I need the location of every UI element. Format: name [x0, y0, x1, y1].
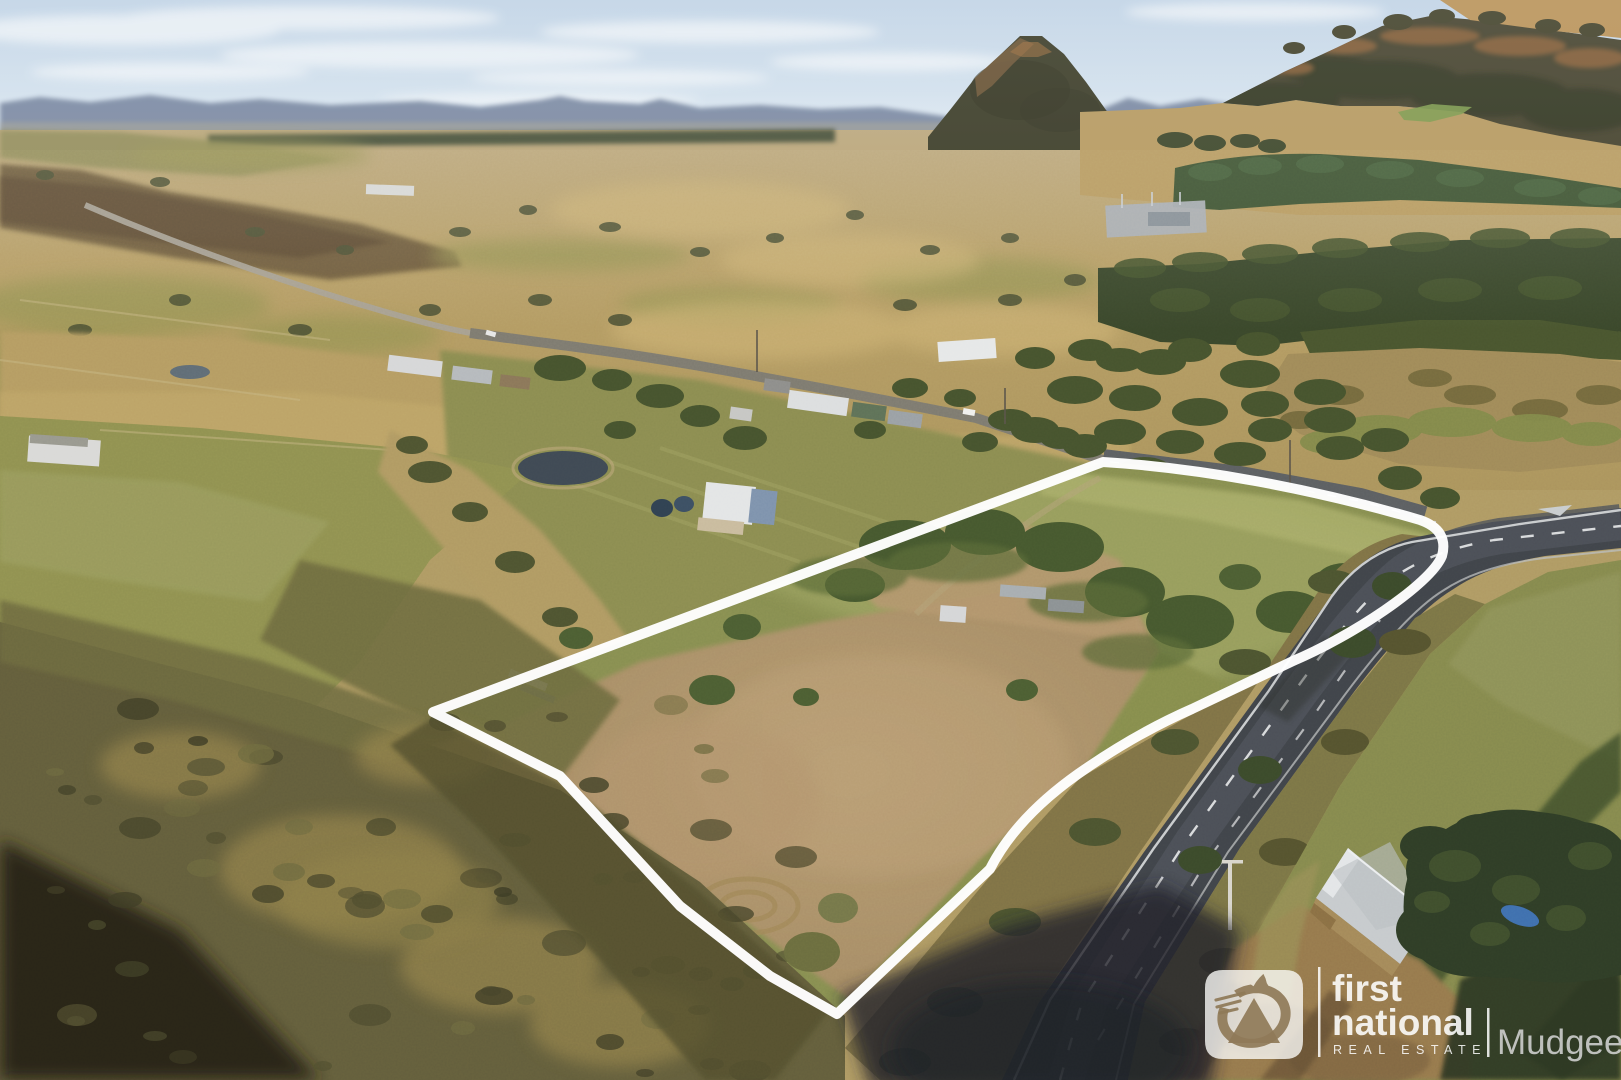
- svg-text:Mudgee: Mudgee: [1497, 1023, 1621, 1062]
- svg-text:REAL ESTATE: REAL ESTATE: [1333, 1043, 1487, 1057]
- svg-text:national: national: [1332, 1002, 1474, 1043]
